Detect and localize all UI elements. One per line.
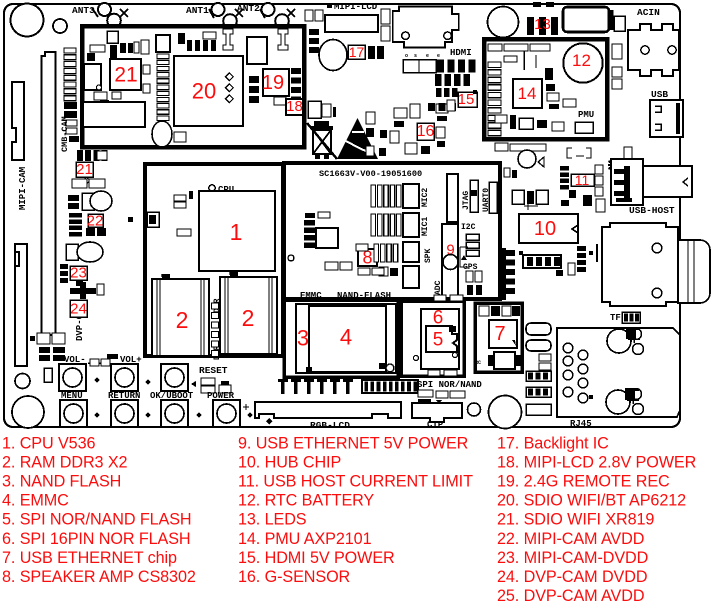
svg-text:RJ45: RJ45 xyxy=(570,419,592,429)
svg-text:CTP: CTP xyxy=(427,420,444,430)
svg-text:MIC1: MIC1 xyxy=(421,217,430,236)
svg-text:MIPI-CAM: MIPI-CAM xyxy=(18,167,28,210)
svg-text:21. SDIO WIFI XR819: 21. SDIO WIFI XR819 xyxy=(497,511,654,529)
svg-text:R50: R50 xyxy=(229,271,237,277)
svg-text:3. NAND FLASH: 3. NAND FLASH xyxy=(2,473,121,491)
svg-text:17. Backlight IC: 17. Backlight IC xyxy=(497,435,609,453)
svg-text:23. MIPI-CAM-DVDD: 23. MIPI-CAM-DVDD xyxy=(497,549,648,567)
svg-text:ACIN: ACIN xyxy=(637,7,660,18)
svg-text:10: 10 xyxy=(534,218,556,240)
svg-text:23: 23 xyxy=(70,265,87,282)
svg-text:PMU: PMU xyxy=(578,110,594,120)
svg-text:18: 18 xyxy=(286,98,303,115)
svg-text:16: 16 xyxy=(417,123,435,140)
svg-text:11: 11 xyxy=(575,172,590,188)
svg-text:1. CPU V536: 1. CPU V536 xyxy=(2,435,95,453)
svg-text:SPK: SPK xyxy=(424,248,433,263)
svg-text:12: 12 xyxy=(572,51,591,70)
svg-text:20. SDIO WIFI/BT AP6212: 20. SDIO WIFI/BT AP6212 xyxy=(497,492,686,510)
svg-text:22: 22 xyxy=(87,213,104,230)
svg-text:10. HUB CHIP: 10. HUB CHIP xyxy=(238,454,341,472)
svg-text:MIC2: MIC2 xyxy=(421,188,430,207)
svg-text:15: 15 xyxy=(458,91,475,108)
svg-text:24: 24 xyxy=(70,301,87,318)
svg-text:HDMI: HDMI xyxy=(450,48,472,58)
svg-text:18. MIPI-LCD 2.8V POWER: 18. MIPI-LCD 2.8V POWER xyxy=(497,454,696,472)
svg-text:USB: USB xyxy=(651,89,668,100)
svg-text:8. SPEAKER AMP CS8302: 8. SPEAKER AMP CS8302 xyxy=(2,568,196,586)
svg-text:SPI NOR/NAND: SPI NOR/NAND xyxy=(417,380,482,390)
svg-text:20: 20 xyxy=(192,79,216,104)
svg-text:25. DVP-CAM AVDD: 25. DVP-CAM AVDD xyxy=(497,587,644,602)
svg-text:9. USB ETHERNET 5V POWER: 9. USB ETHERNET 5V POWER xyxy=(238,435,468,453)
svg-text:2: 2 xyxy=(242,305,255,331)
svg-text:NAND-FLASH: NAND-FLASH xyxy=(337,291,391,301)
svg-text:7. USB ETHERNET chip: 7. USB ETHERNET chip xyxy=(2,549,177,567)
svg-text:ANT2: ANT2 xyxy=(237,3,260,14)
svg-text:15. HDMI 5V POWER: 15. HDMI 5V POWER xyxy=(238,549,395,567)
svg-text:SC1663V-V00-19051600: SC1663V-V00-19051600 xyxy=(319,169,422,179)
svg-text:TF: TF xyxy=(610,313,621,323)
svg-text:14. PMU AXP2101: 14. PMU AXP2101 xyxy=(238,530,372,548)
svg-text:24. DVP-CAM DVDD: 24. DVP-CAM DVDD xyxy=(497,568,647,586)
svg-text:7: 7 xyxy=(494,323,505,345)
svg-text:4: 4 xyxy=(340,325,352,350)
svg-text:13. LEDS: 13. LEDS xyxy=(238,511,307,529)
svg-text:5. SPI NOR/NAND FLASH: 5. SPI NOR/NAND FLASH xyxy=(2,511,192,529)
svg-text:RGB-LCD: RGB-LCD xyxy=(310,420,350,431)
svg-text:14: 14 xyxy=(518,84,537,103)
svg-text:MIPI-LCD: MIPI-LCD xyxy=(334,2,378,12)
svg-text:2. RAM DDR3 X2: 2. RAM DDR3 X2 xyxy=(2,454,128,472)
svg-text:o: o xyxy=(405,53,408,59)
svg-text:CMB-CAM: CMB-CAM xyxy=(60,116,70,152)
svg-text:13: 13 xyxy=(534,16,551,33)
svg-text:e: e xyxy=(426,53,429,59)
svg-text:I2C: I2C xyxy=(461,223,476,232)
svg-text:RESET: RESET xyxy=(199,365,228,376)
svg-text:s: s xyxy=(414,53,417,59)
svg-text:2: 2 xyxy=(176,307,189,333)
svg-text:12. RTC BATTERY: 12. RTC BATTERY xyxy=(238,492,374,510)
svg-text:ANT1: ANT1 xyxy=(186,5,209,16)
svg-text:6. SPI 16PIN NOR FLASH: 6. SPI 16PIN NOR FLASH xyxy=(2,530,191,548)
svg-text:3: 3 xyxy=(297,326,309,351)
svg-text:17: 17 xyxy=(349,44,365,60)
svg-text:22. MIPI-CAM AVDD: 22. MIPI-CAM AVDD xyxy=(497,530,644,548)
svg-text:19. 2.4G REMOTE REC: 19. 2.4G REMOTE REC xyxy=(497,473,670,491)
svg-text:5: 5 xyxy=(433,330,444,351)
svg-text:R50: R50 xyxy=(161,273,169,279)
svg-text:4. EMMC: 4. EMMC xyxy=(2,492,69,510)
svg-text:EMMC: EMMC xyxy=(300,291,322,301)
svg-text:16. G-SENSOR: 16. G-SENSOR xyxy=(238,568,350,586)
svg-text:21: 21 xyxy=(76,161,93,178)
svg-text:19: 19 xyxy=(262,72,284,94)
svg-text:21: 21 xyxy=(114,64,137,87)
svg-text:ANT3: ANT3 xyxy=(72,5,95,16)
svg-text:RC: RC xyxy=(475,360,481,366)
svg-text:1: 1 xyxy=(230,219,243,245)
svg-text:e: e xyxy=(437,53,440,59)
svg-text:11. USB HOST CURRENT LIMIT: 11. USB HOST CURRENT LIMIT xyxy=(238,473,473,491)
svg-text:USB-HOST: USB-HOST xyxy=(629,205,675,216)
